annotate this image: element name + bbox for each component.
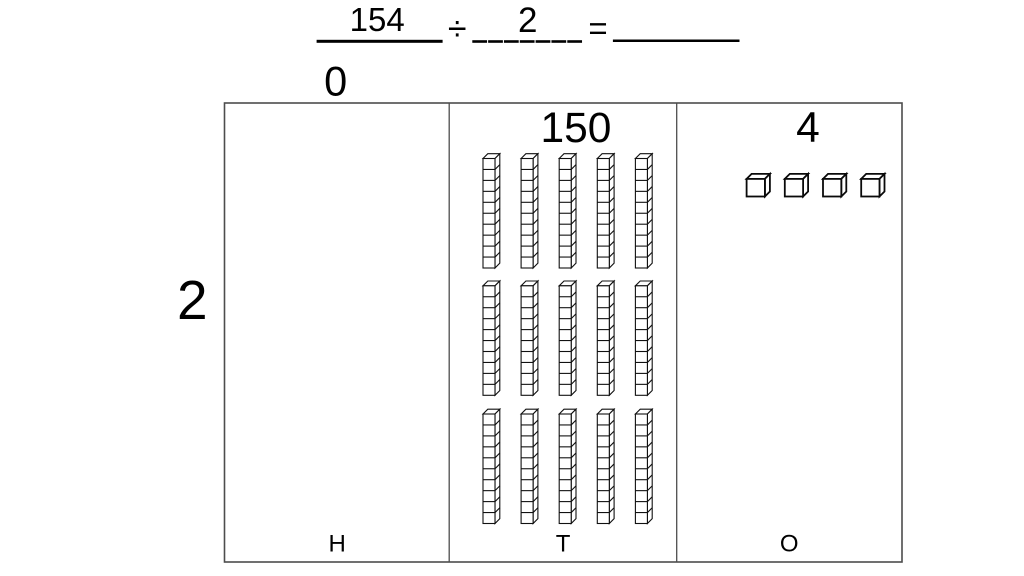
svg-text:O: O	[780, 531, 799, 558]
svg-text:T: T	[556, 531, 571, 558]
svg-text:0: 0	[324, 57, 347, 104]
svg-text:2: 2	[518, 1, 537, 40]
svg-text:=: =	[588, 10, 607, 47]
svg-text:154: 154	[350, 1, 405, 38]
svg-text:2: 2	[177, 269, 208, 331]
svg-text:4: 4	[796, 105, 820, 152]
svg-text:H: H	[329, 531, 346, 558]
svg-text:÷: ÷	[448, 10, 467, 48]
svg-text:150: 150	[541, 105, 612, 152]
